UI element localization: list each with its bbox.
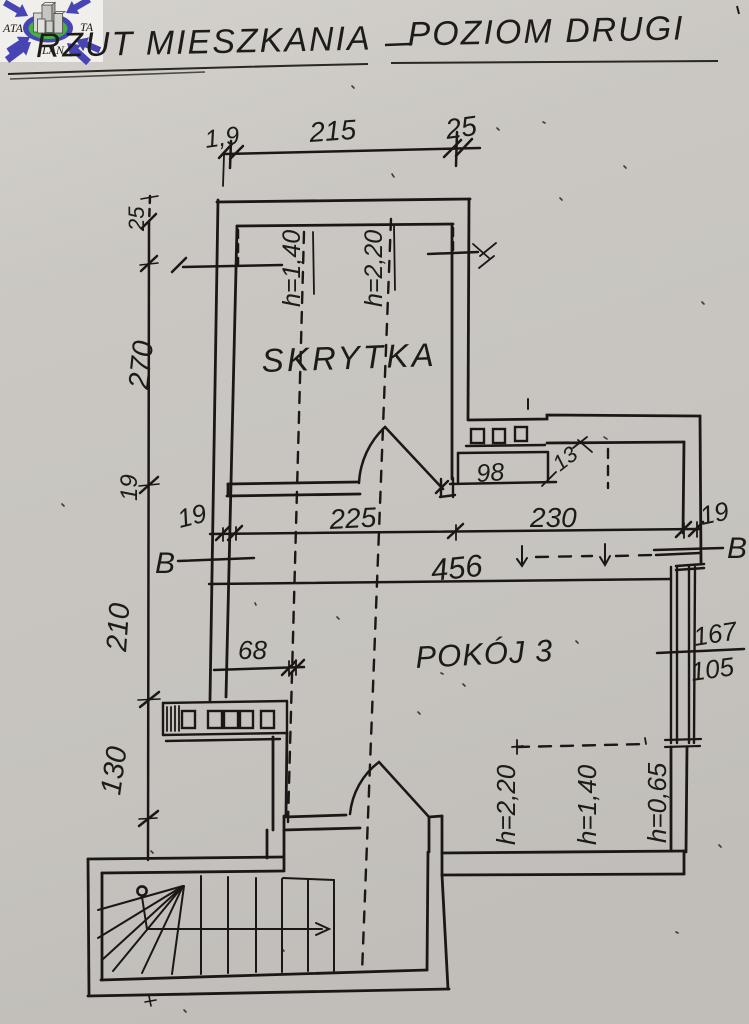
svg-text:B: B (727, 532, 747, 565)
svg-text:POKÓJ 3: POKÓJ 3 (415, 633, 555, 675)
svg-text:230: 230 (529, 502, 577, 533)
svg-text:1,9: 1,9 (203, 121, 241, 154)
svg-text:RZUT MIESZKANIA: RZUT MIESZKANIA (35, 19, 372, 65)
svg-text:B: B (155, 547, 175, 580)
svg-text:25: 25 (443, 110, 480, 145)
svg-text:98: 98 (475, 458, 505, 488)
svg-text:h=2,20: h=2,20 (491, 764, 521, 845)
svg-text:SKRYTKA: SKRYTKA (261, 336, 437, 379)
svg-text:225: 225 (328, 502, 378, 535)
svg-text:h=0,65: h=0,65 (642, 762, 672, 843)
svg-text:19: 19 (116, 474, 143, 501)
svg-text:h=1,40: h=1,40 (572, 764, 602, 845)
svg-text:270: 270 (123, 339, 160, 391)
svg-text:h=1,40: h=1,40 (278, 230, 306, 307)
svg-text:ATA: ATA (2, 21, 24, 35)
svg-text:210: 210 (101, 602, 136, 654)
svg-text:456: 456 (429, 548, 485, 588)
svg-text:POZIOM DRUGI: POZIOM DRUGI (407, 9, 685, 53)
svg-text:25: 25 (124, 206, 149, 232)
svg-text:130: 130 (95, 745, 133, 797)
svg-text:68: 68 (238, 635, 267, 665)
svg-text:105: 105 (689, 651, 737, 687)
svg-text:19: 19 (697, 496, 732, 531)
svg-text:215: 215 (307, 114, 357, 148)
svg-text:h=2,20: h=2,20 (360, 230, 388, 307)
